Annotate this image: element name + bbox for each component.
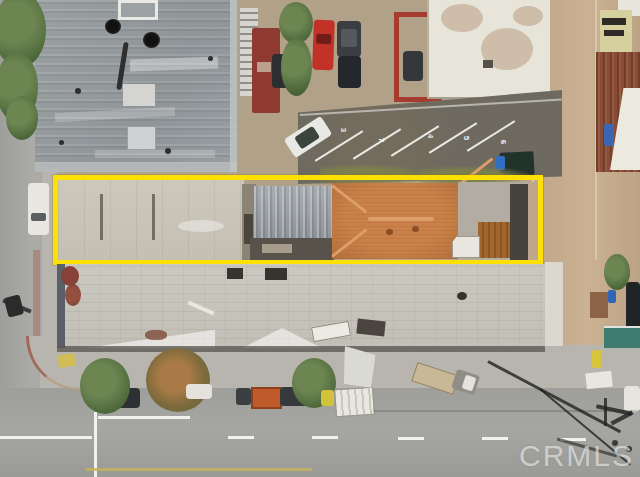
roof-dot-3 xyxy=(165,148,171,154)
stall-number-5: 6 xyxy=(499,140,507,144)
skylight xyxy=(118,0,158,20)
roof-streak-2 xyxy=(95,150,215,158)
roof-clutter-pipe xyxy=(187,300,214,315)
parked-car-red xyxy=(312,20,335,71)
roof-dot-1 xyxy=(75,88,81,94)
gutter-line xyxy=(374,410,640,412)
lane-dash-2 xyxy=(312,436,338,439)
roof-white-band xyxy=(130,56,218,71)
white-wash-2 xyxy=(242,328,322,348)
lane-dash-4 xyxy=(482,437,508,440)
white-roof-building xyxy=(427,0,550,99)
roof-vent-2 xyxy=(143,32,160,48)
red-car-windshield xyxy=(316,34,331,45)
yellow-vehicle xyxy=(321,390,334,406)
roof-pipe xyxy=(116,42,128,90)
shrub-court-2 xyxy=(281,38,312,96)
aerial-photo: 3 7 4 5 6 xyxy=(0,0,640,477)
teal-roof-structure xyxy=(604,326,640,348)
roof-white-patch xyxy=(123,84,155,106)
left-curb-brick-strip xyxy=(33,250,40,348)
stall-number-4: 5 xyxy=(462,136,470,140)
roof-hatch xyxy=(483,60,493,68)
roof-dot-4 xyxy=(208,56,213,61)
stall-number-1: 3 xyxy=(339,128,347,132)
stop-bar-right xyxy=(98,416,190,419)
stall-number-2: 7 xyxy=(377,138,385,142)
roof-vent-1 xyxy=(105,19,121,34)
lane-dash-1 xyxy=(228,436,254,439)
tree-top-left-3 xyxy=(6,96,38,140)
street-tree-2-autumn xyxy=(146,348,210,412)
utility-pole xyxy=(604,398,607,426)
street-tree-1 xyxy=(80,358,130,414)
roof-stain-1 xyxy=(441,4,483,32)
suv-roof xyxy=(341,29,357,47)
red-building-detail xyxy=(257,62,271,72)
lane-line-left-solid xyxy=(0,436,92,439)
block-roof-vent-1 xyxy=(227,268,243,279)
stall-number-3: 4 xyxy=(426,134,434,138)
brown-pergola xyxy=(590,292,608,318)
car-in-carport xyxy=(403,51,423,81)
curb-ramp-pad xyxy=(57,353,76,368)
roof-clutter-rubble xyxy=(145,330,167,340)
parked-car-dark-2 xyxy=(338,56,361,88)
white-van-left-street xyxy=(28,183,49,235)
white-market-canopy xyxy=(334,387,375,418)
white-canopy-right xyxy=(585,371,613,390)
center-yellow-line xyxy=(86,468,312,471)
metal-roof-building xyxy=(35,0,237,172)
parcel-outline-highlight xyxy=(53,175,543,265)
block-roof-vent-2 xyxy=(265,268,287,280)
red-plants-2 xyxy=(65,284,81,306)
parked-suv-dark xyxy=(337,21,361,57)
lane-dash-3 xyxy=(398,437,424,440)
red-plants-1 xyxy=(61,266,79,286)
block-roof-building xyxy=(57,264,545,348)
roof-streak-1 xyxy=(55,107,175,122)
roof-parapet xyxy=(35,162,237,172)
roof-dot-2 xyxy=(59,140,64,145)
truck-orange-bed xyxy=(251,387,282,409)
flatbed-cab-roof xyxy=(462,375,477,392)
roof-white-box xyxy=(127,126,156,150)
building-front-shadow xyxy=(57,346,545,352)
flatbed-cab xyxy=(451,369,480,395)
van-windshield xyxy=(31,213,46,221)
yellow-building-bar-1 xyxy=(602,18,626,25)
roof-clutter-white-box xyxy=(311,321,351,342)
roof-right-parapet xyxy=(230,0,237,172)
block-roof-vent-3 xyxy=(457,292,467,300)
alley-white-building xyxy=(545,262,563,346)
white-truck-right xyxy=(624,386,640,412)
roof-stain-3 xyxy=(513,6,543,26)
blue-dumpster xyxy=(604,124,614,146)
roof-clutter-dark xyxy=(356,319,385,337)
parked-car-white xyxy=(186,384,212,399)
truck-cab xyxy=(236,388,251,405)
watermark-text: CRMLS xyxy=(519,439,634,473)
yellow-bin xyxy=(592,350,602,368)
yellow-building-bar-2 xyxy=(604,30,624,36)
blue-bin-right xyxy=(608,290,616,303)
